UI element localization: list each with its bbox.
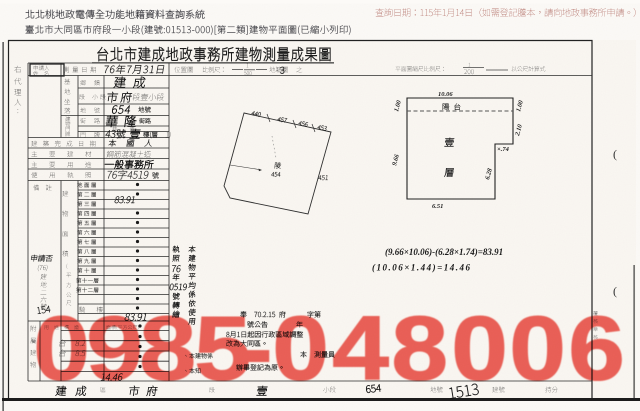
- svg-text:8: 8: [391, 298, 448, 399]
- svg-text:0: 0: [509, 298, 566, 399]
- svg-text:×.74: ×.74: [497, 146, 510, 153]
- svg-text:0: 0: [33, 298, 90, 399]
- svg-text:8: 8: [139, 298, 196, 399]
- svg-text:(10.06×1.44)=14.46: (10.06×1.44)=14.46: [372, 263, 472, 273]
- svg-text:(: (: [613, 147, 617, 161]
- svg-text:(: (: [613, 284, 617, 298]
- svg-text:6.51: 6.51: [432, 203, 443, 210]
- svg-text:0: 0: [272, 298, 329, 399]
- svg-text:0: 0: [451, 298, 508, 399]
- svg-text:4: 4: [332, 298, 389, 399]
- svg-text:-: -: [239, 298, 273, 399]
- svg-text:(9.66×10.06)-(6.28×1.74)=83.91: (9.66×10.06)-(6.28×1.74)=83.91: [385, 247, 503, 257]
- svg-text:6: 6: [568, 298, 625, 399]
- svg-text:9: 9: [86, 298, 143, 399]
- svg-text:10.06: 10.06: [438, 91, 453, 98]
